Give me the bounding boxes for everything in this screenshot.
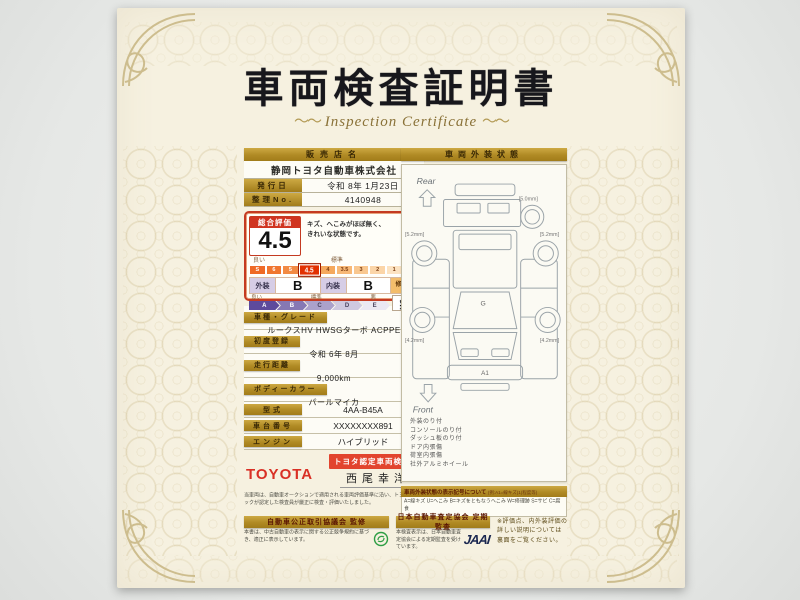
first-registration-label: 初度登録 xyxy=(244,336,300,347)
certificate-subtitle: ～～ Inspection Certificate ～～ xyxy=(117,110,685,131)
chassis-number-label: 車台番号 xyxy=(244,420,302,431)
certifier-block: TOYOTA トヨタ認定車両検査員 西尾幸洋 xyxy=(244,453,424,489)
rear-left-tire-tread-label: [5.2mm] xyxy=(405,232,425,238)
interior-grade: B xyxy=(347,278,392,293)
scale-label-standard: 標準 xyxy=(331,258,343,264)
legend-example: (例:A1=線キズ(1)程度等) xyxy=(488,490,537,495)
scale-cell: 3 xyxy=(353,265,370,275)
vehicle-info-table: 車種・グレード ルークスHV HWSGターボ ACPPE 初度登録 令和 6年 … xyxy=(244,306,424,450)
certificate-subtitle-text: Inspection Certificate xyxy=(325,114,477,130)
certificate-sheet: 車両検査証明書 ～～ Inspection Certificate ～～ 販売店… xyxy=(117,8,685,588)
list-item: コンソールのり付 xyxy=(410,428,468,436)
issue-date-label: 発行日 xyxy=(244,179,302,192)
fair-trade-bar: 自動車公正取引協議会 監修 xyxy=(244,516,389,528)
ornament-band-bottom xyxy=(125,556,677,582)
rear-right-tire-tread-label: [5.2mm] xyxy=(540,232,560,238)
list-item: ドア内張傷 xyxy=(410,445,468,453)
windshield-mark: G xyxy=(480,300,485,307)
grade-chevron-bar: A B C D E xyxy=(249,301,390,310)
grade-cell: B xyxy=(277,301,308,310)
mileage-label: 走行距離 xyxy=(244,360,300,371)
jaai-fineprint-text: 本検査表示は、日本自動車査定協会による定期監査を受けています。 xyxy=(396,529,464,549)
legend-title: 車両外装状態の表示記号について xyxy=(404,489,486,495)
table-row: 車台番号 XXXXXXXX891 xyxy=(244,418,424,434)
jaai-block: 日本自動車査定協会 定期監査 本検査表示は、日本自動車査定協会による定期監査を受… xyxy=(396,516,490,549)
front-right-tire-tread-label: [4.2mm] xyxy=(540,338,560,344)
scale-cell: 1 xyxy=(386,265,403,275)
scale-cell: 2 xyxy=(369,265,386,275)
front-direction-label: Front xyxy=(413,404,434,414)
dealer-name: 静岡トヨタ自動車株式会社 xyxy=(244,161,424,179)
list-item: 荷室内張傷 xyxy=(410,453,468,461)
exterior-grade: B xyxy=(276,278,321,293)
exterior-interior-row: 外装 B 内装 B 修復歴 xyxy=(249,277,419,294)
certifier-note-text: 当車両は、自動車オークションで適用される車両評価基準に沿い、トヨタユーゼックが認… xyxy=(244,492,424,507)
grade-cell: C xyxy=(304,301,335,310)
right-column: 車両外装状態 xyxy=(401,148,567,517)
left-column: 販売店名 静岡トヨタ自動車株式会社 発行日 令和 8年 1月23日 整理No. … xyxy=(244,148,424,518)
legend-line: A=線キズ U=へこみ B=キズをともなうへこみ W=修理跡 S=サビ C=腐食 xyxy=(404,498,564,513)
grade-scale-row: 良い 標準 悪 A B C D E 無 xyxy=(249,295,419,311)
grade-cell: E xyxy=(359,301,390,310)
toyota-logo: TOYOTA xyxy=(246,466,313,483)
scale-cell: 5 xyxy=(282,265,299,275)
front-left-tire-tread-label: [4.2mm] xyxy=(405,338,425,344)
table-row: エンジン ハイブリッド xyxy=(244,434,424,450)
fair-trade-fineprint-text: 本書は、中古自動車の表示に関する公正競争規約に基づき、適正に表示しています。 xyxy=(244,529,373,544)
exterior-label: 外装 xyxy=(250,278,276,293)
overall-score: 4.5 xyxy=(250,228,300,254)
model-grade-label: 車種・グレード xyxy=(244,312,327,323)
grade-label-standard: 標準 xyxy=(311,295,322,301)
list-item: ダッシュ板のり付 xyxy=(410,436,468,444)
footer-strip: 自動車公正取引協議会 監修 本書は、中古自動車の表示に関する公正競争規約に基づき… xyxy=(244,516,568,549)
fair-trade-logo-icon xyxy=(373,529,389,549)
ref-number-label: 整理No. xyxy=(244,193,302,206)
back-note-line: 裏面をご覧ください。 xyxy=(497,537,568,546)
rear-direction-label: Rear xyxy=(417,176,437,186)
evaluation-top: 総合評価 4.5 キズ、へこみがほぼ無く、 きれいな状態です。 xyxy=(249,216,419,256)
jaai-fineprint: 本検査表示は、日本自動車査定協会による定期監査を受けています。 xyxy=(396,529,464,549)
exterior-notes-list: 外装のり付 コンソールのり付 ダッシュ板のり付 ドア内張傷 荷室内張傷 社外アル… xyxy=(410,419,468,470)
grade-label-good: 良い xyxy=(251,295,262,301)
interior-label: 内装 xyxy=(321,278,347,293)
scale-cell: 6 xyxy=(266,265,283,275)
scale-cell: S xyxy=(249,265,266,275)
ornament-band-right xyxy=(567,146,679,556)
score-scale-bar: S 6 5 4.5 4 3.5 3 2 1 R xyxy=(249,265,419,275)
flourish-corner-icon xyxy=(603,506,683,586)
scale-cell-highlighted: 4.5 xyxy=(299,264,320,276)
scale-label-good: 良い xyxy=(253,258,265,264)
car-diagram: Rear Front [5.0mm] [5.2mm] [5.2mm] [4.2m… xyxy=(405,167,565,417)
grade-cell: D xyxy=(332,301,363,310)
spare-tire-tread-label: [5.0mm] xyxy=(519,196,539,202)
front-bumper-mark: A1 xyxy=(481,370,489,377)
score-box: 総合評価 4.5 xyxy=(249,216,301,256)
overall-evaluation-box: 総合評価 4.5 キズ、へこみがほぼ無く、 きれいな状態です。 良い 標準 R … xyxy=(244,211,424,301)
grade-cell: A xyxy=(249,301,280,310)
scale-labels: 良い 標準 R xyxy=(249,258,419,264)
back-side-note: ※評価点、内外装評価の 詳しい説明については 裏面をご覧ください。 xyxy=(497,516,568,549)
ornament-band-left xyxy=(123,146,237,556)
fair-trade-fineprint: 本書は、中古自動車の表示に関する公正競争規約に基づき、適正に表示しています。 xyxy=(244,529,373,549)
jaai-logo: JAAI xyxy=(463,529,491,549)
model-code-label: 型式 xyxy=(244,404,302,415)
flourish-left: ～～ xyxy=(294,114,320,130)
certificate-title: 車両検査証明書 xyxy=(117,56,685,114)
exterior-condition-header: 車両外装状態 xyxy=(401,148,567,161)
list-item: 社外アルミホイール xyxy=(410,462,468,470)
legend-header-bar: 車両外装状態の表示記号について (例:A1=線キズ(1)程度等) xyxy=(401,486,567,497)
flourish-corner-icon xyxy=(119,506,199,586)
back-note-line: ※評価点、内外装評価の xyxy=(497,518,568,527)
grade-label-bad: 悪 xyxy=(370,295,376,301)
list-item: 外装のり付 xyxy=(410,419,468,427)
flourish-right: ～～ xyxy=(482,114,508,130)
scale-cell: 3.5 xyxy=(336,265,353,275)
grade-scale: 良い 標準 悪 A B C D E xyxy=(249,295,390,311)
dealer-header-bar: 販売店名 xyxy=(244,148,424,161)
issue-date-row: 発行日 令和 8年 1月23日 xyxy=(244,179,424,193)
scale-cell: 4 xyxy=(320,265,337,275)
jaai-bar: 日本自動車査定協会 定期監査 xyxy=(396,516,490,528)
engine-label: エンジン xyxy=(244,436,302,447)
legend-header-text: 車両外装状態の表示記号について (例:A1=線キズ(1)程度等) xyxy=(404,488,537,496)
back-note-line: 詳しい説明については xyxy=(497,527,568,536)
body-color-label: ボディーカラー xyxy=(244,384,327,395)
ref-number-row: 整理No. 4140948 xyxy=(244,193,424,207)
exterior-condition-panel: Rear Front [5.0mm] [5.2mm] [5.2mm] [4.2m… xyxy=(401,164,567,482)
fair-trade-block: 自動車公正取引協議会 監修 本書は、中古自動車の表示に関する公正競争規約に基づき… xyxy=(244,516,389,549)
table-row: 型式 4AA-B45A xyxy=(244,402,424,418)
